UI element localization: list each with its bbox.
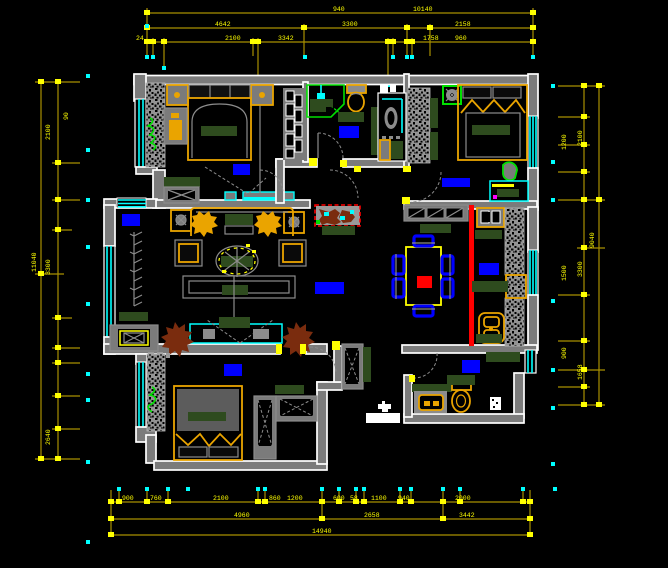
svg-text:1658: 1658 <box>577 364 584 380</box>
svg-text:2100: 2100 <box>213 495 229 502</box>
svg-text:1200: 1200 <box>287 495 303 502</box>
svg-text:4642: 4642 <box>215 21 231 28</box>
svg-text:1758: 1758 <box>423 35 439 42</box>
svg-text:1100: 1100 <box>371 495 387 502</box>
svg-text:900: 900 <box>561 347 568 359</box>
svg-text:900: 900 <box>122 495 134 502</box>
svg-text:9040: 9040 <box>589 232 596 248</box>
svg-text:3300: 3300 <box>342 21 358 28</box>
svg-text:58: 58 <box>350 495 358 502</box>
svg-text:860: 860 <box>269 495 281 502</box>
svg-text:600: 600 <box>333 495 345 502</box>
svg-text:2640: 2640 <box>45 429 52 445</box>
svg-text:90: 90 <box>63 112 70 120</box>
svg-text:940: 940 <box>398 495 410 502</box>
svg-text:10140: 10140 <box>413 6 433 13</box>
svg-text:2658: 2658 <box>364 512 380 519</box>
svg-text:11040: 11040 <box>31 252 38 272</box>
svg-text:2000: 2000 <box>455 495 471 502</box>
svg-text:1200: 1200 <box>561 134 568 150</box>
svg-text:2100: 2100 <box>45 124 52 140</box>
svg-text:4960: 4960 <box>234 512 250 519</box>
svg-text:3300: 3300 <box>577 261 584 277</box>
svg-text:14940: 14940 <box>312 528 332 535</box>
svg-text:2100: 2100 <box>225 35 241 42</box>
svg-text:3300: 3300 <box>45 259 52 275</box>
svg-text:2158: 2158 <box>455 21 471 28</box>
svg-text:2100: 2100 <box>577 130 584 146</box>
svg-text:24: 24 <box>136 35 144 42</box>
svg-text:1500: 1500 <box>561 265 568 281</box>
svg-text:3442: 3442 <box>459 512 475 519</box>
svg-text:3342: 3342 <box>278 35 294 42</box>
svg-text:940: 940 <box>333 6 345 13</box>
svg-text:960: 960 <box>455 35 467 42</box>
svg-text:760: 760 <box>150 495 162 502</box>
